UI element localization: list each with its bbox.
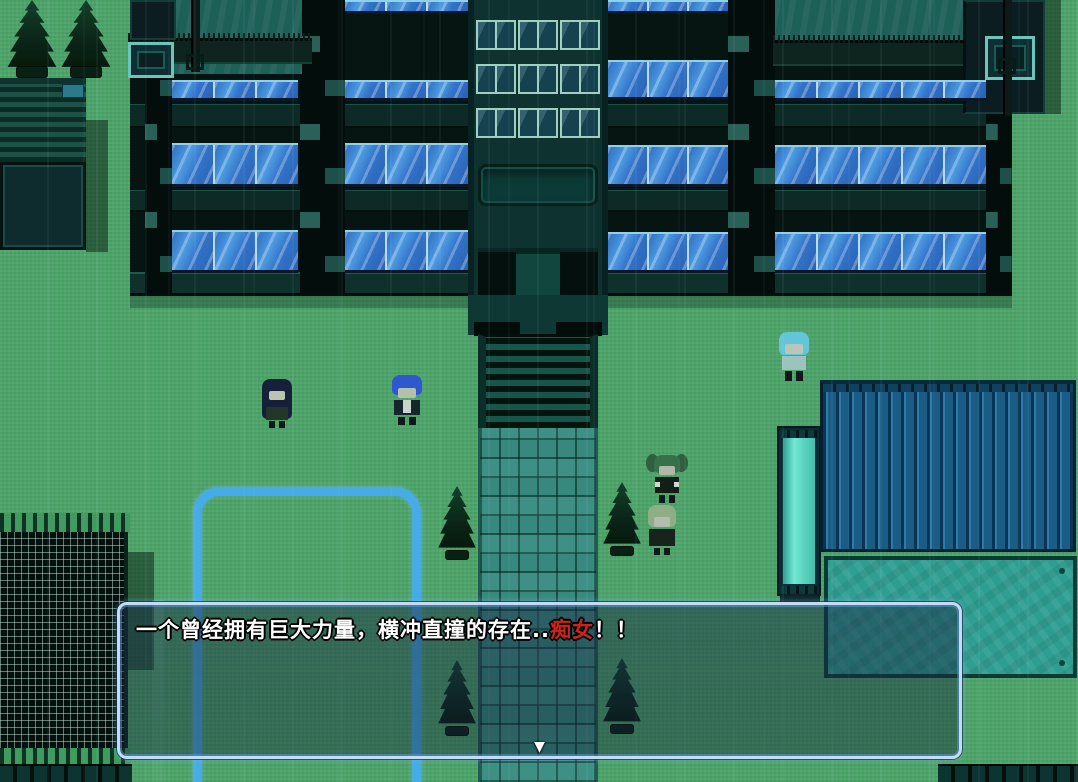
legs [398,417,405,425]
dialogue-text-normal: ！！ [594,618,638,642]
npc-twintail-girl[interactable] [650,452,684,504]
legs [796,371,803,381]
tank-cap [781,586,817,594]
tree-base [70,66,102,78]
tree-base [445,550,469,560]
body [649,529,675,546]
window-band [345,0,468,14]
face [785,344,803,354]
pine-tree [60,0,112,76]
legs [785,371,792,381]
body [782,356,806,370]
window-band [172,80,298,101]
legs [654,548,660,555]
tank-cap [781,430,817,438]
face [269,391,285,400]
pine-tree [602,482,642,552]
face [398,388,416,398]
tower-window [560,108,600,138]
tower-window [518,20,558,50]
legs [409,417,416,425]
legs [269,421,275,428]
window-band [775,145,986,187]
block-row [0,764,132,782]
tree-base [16,66,48,78]
continue-arrow-icon[interactable]: ▼ [534,740,545,754]
pine-tree [437,486,477,556]
dialogue-text-normal: 一个曾经拥有巨大力量，横冲直撞的存在.. [136,618,550,642]
game-viewport: 一个曾经拥有巨大力量，横冲直撞的存在..痴女！！ ▼ [0,0,1078,782]
dark-panel [0,162,86,250]
legs [279,421,285,428]
npc-blue-haired-character[interactable] [390,374,424,426]
crane-hook-left [186,54,204,70]
window-band [608,232,728,273]
window-band [345,230,468,273]
striped-structure-window [62,84,84,98]
window-band [608,60,728,100]
tower-window [476,20,516,50]
tower-window [560,64,600,94]
pine-tree [6,0,58,76]
window-band [172,143,298,187]
face [659,466,675,475]
window-band [608,145,728,187]
block-row [938,764,1078,782]
entrance-sign [478,164,598,206]
window-band [345,143,468,187]
crane-hook-right [998,58,1016,74]
window-band [775,80,986,101]
corrugated-roof [820,380,1076,552]
legs [664,548,670,555]
building-ledge [600,104,1012,128]
solar-grid-panel [0,532,128,749]
building-base [600,272,1012,296]
body [266,407,288,420]
shirt [403,400,411,413]
legs [659,495,665,503]
window-band [172,230,298,273]
tower-window [476,108,516,138]
dialogue-text-highlight: 痴女 [550,618,594,642]
window-band [608,0,728,14]
building-ledge [600,190,1012,212]
dialogue-text: 一个曾经拥有巨大力量，横冲直撞的存在..痴女！！ [136,615,943,646]
corner-shadow [1045,0,1061,114]
npc-dark-haired-girl[interactable] [260,377,294,429]
window-band [775,232,986,273]
hedge-strip [0,513,130,533]
tower-window [560,20,600,50]
npc-cyan-haired-character[interactable] [777,331,811,383]
dialogue-box[interactable]: 一个曾经拥有巨大力量，横冲直撞的存在..痴女！！ ▼ [117,602,962,759]
entrance-stairs[interactable] [478,334,598,428]
panel-shadow [86,120,108,252]
roof-machine-left [130,0,176,40]
storage-tank-top [783,438,815,584]
building-pilaster [728,0,775,296]
tower-window [518,108,558,138]
tower-window [476,64,516,94]
tower-window [518,64,558,94]
cuff [655,482,660,487]
face [654,517,670,527]
window-band [345,80,468,101]
npc-green-haired-girl[interactable] [645,504,679,556]
roof-panel-left [128,42,174,78]
tree-base [610,546,634,556]
cuff [674,482,679,487]
legs [669,495,675,503]
